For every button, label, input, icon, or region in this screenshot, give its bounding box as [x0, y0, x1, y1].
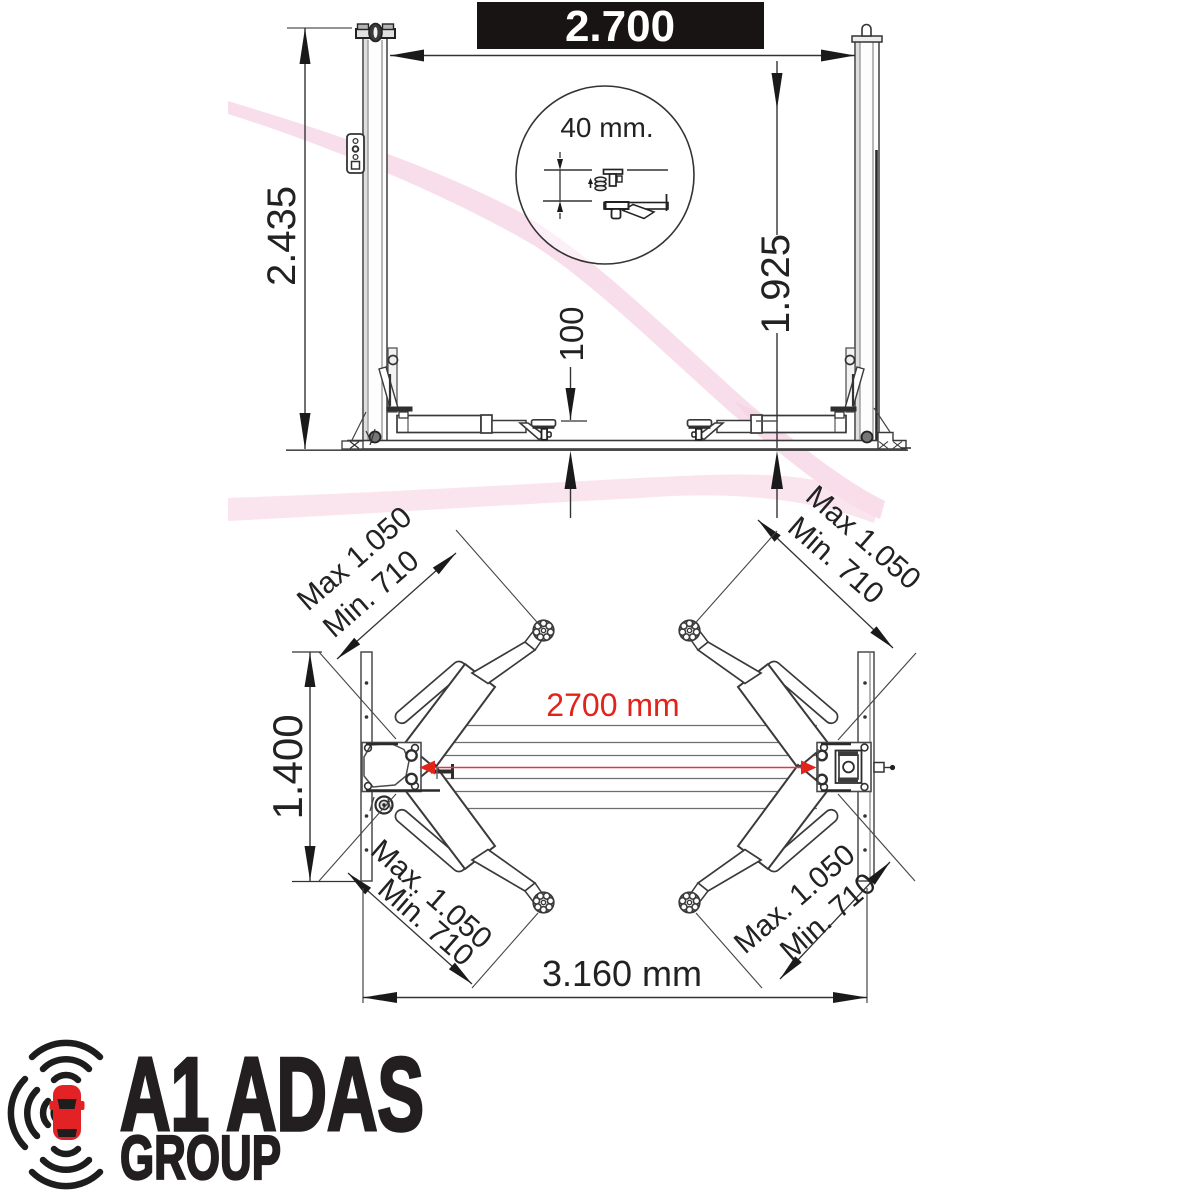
svg-text:2.700: 2.700: [565, 2, 675, 51]
svg-text:40 mm.: 40 mm.: [560, 112, 653, 143]
svg-text:2.435: 2.435: [260, 186, 304, 286]
svg-text:1.925: 1.925: [754, 234, 798, 334]
svg-text:1.400: 1.400: [264, 714, 311, 819]
svg-text:3.160 mm: 3.160 mm: [542, 953, 702, 994]
svg-text:100: 100: [553, 306, 590, 361]
svg-text:GROUP: GROUP: [120, 1124, 281, 1193]
svg-text:2700 mm: 2700 mm: [546, 687, 679, 723]
